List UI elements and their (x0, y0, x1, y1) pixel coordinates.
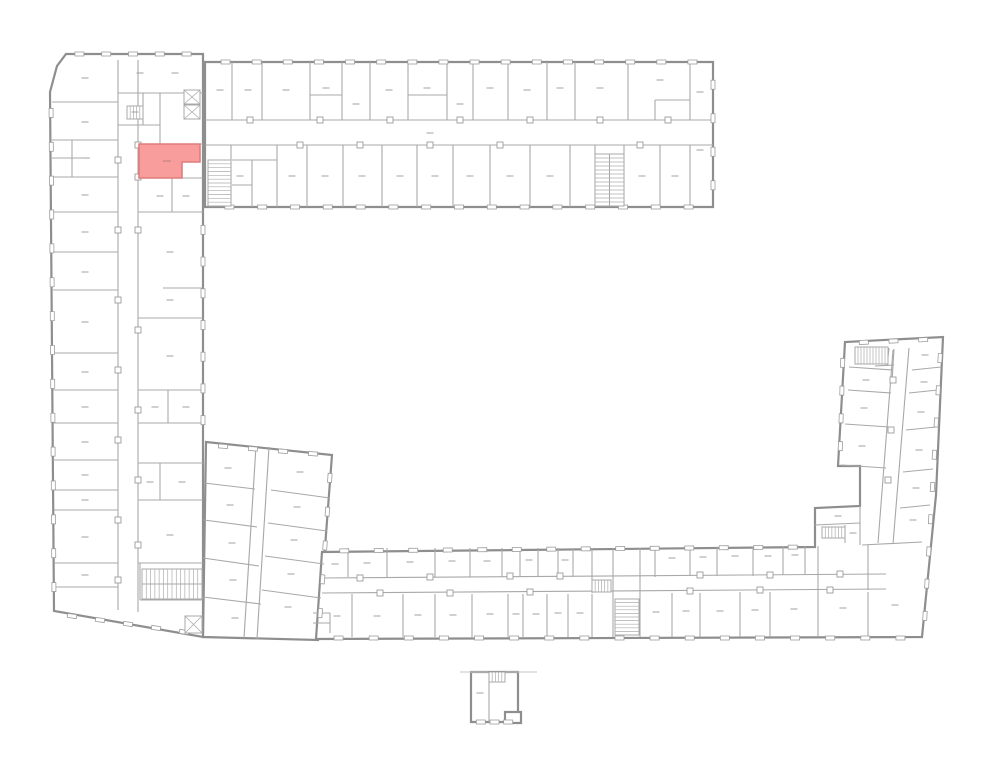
window-icon (325, 507, 330, 516)
window-icon (314, 60, 323, 64)
window-icon (928, 515, 933, 524)
window-icon (932, 450, 937, 459)
window-icon (221, 60, 230, 64)
door-icon (115, 577, 121, 583)
window-icon (377, 60, 386, 64)
window-icon (470, 60, 479, 64)
window-icon (586, 205, 595, 209)
door-icon (115, 157, 121, 163)
window-icon (595, 60, 604, 64)
door-icon (827, 587, 833, 593)
door-icon (885, 477, 891, 483)
window-icon (688, 60, 697, 64)
window-icon (859, 340, 868, 344)
window-icon (422, 205, 431, 209)
window-icon (252, 60, 261, 64)
window-icon (923, 611, 928, 620)
door-icon (687, 588, 693, 594)
window-icon (838, 442, 842, 451)
window-icon (95, 617, 104, 622)
window-icon (711, 181, 715, 190)
staircase-icon (592, 580, 611, 592)
window-icon (389, 205, 398, 209)
window-icon (938, 354, 943, 363)
window-icon (201, 257, 205, 266)
door-icon (497, 142, 503, 148)
window-icon (51, 481, 55, 490)
door-icon (115, 297, 121, 303)
door-icon (357, 142, 363, 148)
window-icon (439, 60, 448, 64)
window-icon (201, 416, 205, 425)
window-icon (478, 548, 487, 552)
window-icon (889, 339, 898, 343)
window-icon (896, 636, 905, 640)
window-icon (926, 547, 931, 556)
window-icon (934, 418, 939, 427)
window-icon (545, 636, 554, 640)
window-icon (919, 337, 928, 341)
floor-plan-page (0, 0, 1000, 777)
door-icon (527, 589, 533, 595)
staircase-icon (822, 527, 845, 538)
window-icon (318, 608, 323, 617)
window-icon (51, 515, 55, 524)
door-icon (597, 117, 603, 123)
window-icon (755, 636, 764, 640)
window-icon (50, 312, 54, 321)
window-icon (334, 636, 343, 640)
window-icon (580, 636, 589, 640)
window-icon (201, 289, 205, 298)
elevator-icon (185, 616, 202, 633)
door-icon (665, 117, 671, 123)
window-icon (720, 636, 729, 640)
window-icon (936, 386, 941, 395)
bottom-and-right-wing (316, 337, 943, 639)
elevator-icon (184, 105, 200, 119)
door-icon (115, 437, 121, 443)
window-icon (75, 52, 84, 56)
window-icon (49, 142, 53, 151)
window-icon (327, 473, 332, 482)
window-icon (51, 413, 55, 422)
staircase-icon (595, 154, 624, 206)
window-icon (50, 278, 54, 287)
window-icon (50, 345, 54, 354)
window-icon (512, 547, 521, 551)
window-icon (308, 451, 317, 456)
window-icon (49, 108, 53, 117)
window-icon (123, 621, 132, 626)
door-icon (135, 407, 141, 413)
window-icon (711, 147, 715, 156)
left-wing (50, 54, 203, 637)
window-icon (930, 482, 935, 491)
window-icon (616, 547, 625, 551)
window-icon (547, 547, 556, 551)
window-icon (283, 60, 292, 64)
window-icon (650, 636, 659, 640)
window-icon (201, 225, 205, 234)
door-icon (427, 142, 433, 148)
window-icon (476, 720, 485, 724)
window-icon (626, 60, 635, 64)
window-icon (788, 545, 797, 549)
window-icon (504, 720, 513, 724)
window-icon (50, 210, 54, 219)
window-icon (711, 114, 715, 123)
door-icon (135, 477, 141, 483)
window-icon (581, 547, 590, 551)
window-icon (841, 358, 845, 367)
window-icon (455, 205, 464, 209)
window-icon (258, 205, 267, 209)
door-icon (247, 117, 253, 123)
door-icon (135, 327, 141, 333)
window-icon (201, 321, 205, 330)
window-icon (52, 583, 56, 592)
elevator-icon (184, 90, 200, 104)
window-icon (685, 546, 694, 550)
window-icon (711, 80, 715, 89)
window-icon (155, 52, 164, 56)
window-icon (67, 613, 76, 618)
door-icon (357, 575, 363, 581)
door-icon (115, 367, 121, 373)
door-icon (890, 377, 896, 383)
window-icon (409, 548, 418, 552)
window-icon (340, 549, 349, 553)
window-icon (49, 176, 53, 185)
window-icon (826, 636, 835, 640)
door-icon (457, 117, 463, 123)
window-icon (102, 52, 111, 56)
window-icon (356, 205, 365, 209)
window-icon (510, 636, 519, 640)
staircase-icon (142, 569, 202, 599)
window-icon (151, 625, 160, 630)
door-icon (697, 572, 703, 578)
staircase-icon (855, 347, 888, 364)
window-icon (52, 549, 56, 558)
door-icon (317, 117, 323, 123)
window-icon (791, 636, 800, 640)
window-icon (182, 52, 191, 56)
window-icon (490, 720, 499, 724)
window-icon (563, 60, 572, 64)
door-icon (387, 117, 393, 123)
window-icon (839, 414, 843, 423)
staircase-icon (489, 672, 505, 682)
door-icon (507, 573, 513, 579)
window-icon (50, 244, 54, 253)
window-icon (51, 447, 55, 456)
window-icon (323, 541, 328, 550)
window-icon (685, 636, 694, 640)
window-icon (129, 52, 138, 56)
window-icon (840, 386, 844, 395)
window-icon (684, 205, 693, 209)
door-icon (837, 571, 843, 577)
window-icon (657, 60, 666, 64)
window-icon (201, 352, 205, 361)
window-icon (520, 205, 529, 209)
window-icon (404, 636, 413, 640)
window-icon (248, 446, 257, 451)
window-icon (439, 636, 448, 640)
window-icon (201, 384, 205, 393)
window-icon (651, 205, 660, 209)
door-icon (447, 590, 453, 596)
window-icon (925, 579, 930, 588)
door-icon (115, 517, 121, 523)
window-icon (475, 636, 484, 640)
door-icon (888, 427, 894, 433)
door-icon (135, 542, 141, 548)
window-icon (51, 379, 55, 388)
window-icon (719, 546, 728, 550)
window-icon (323, 205, 332, 209)
staircase-icon (615, 599, 639, 635)
window-icon (487, 205, 496, 209)
window-icon (650, 546, 659, 550)
window-icon (291, 205, 300, 209)
window-icon (553, 205, 562, 209)
window-icon (501, 60, 510, 64)
door-icon (527, 117, 533, 123)
window-icon (320, 575, 325, 584)
door-icon (557, 573, 563, 579)
window-icon (374, 549, 383, 553)
window-icon (861, 636, 870, 640)
staircase-icon (208, 160, 231, 206)
window-icon (346, 60, 355, 64)
window-icon (278, 449, 287, 454)
window-icon (369, 636, 378, 640)
door-icon (115, 227, 121, 233)
window-icon (615, 636, 624, 640)
window-icon (754, 545, 763, 549)
top-wing (205, 62, 713, 207)
floor-plan-drawing (0, 0, 1000, 777)
door-icon (377, 590, 383, 596)
window-icon (218, 444, 227, 449)
door-icon (427, 574, 433, 580)
door-icon (297, 142, 303, 148)
door-icon (637, 142, 643, 148)
window-icon (443, 548, 452, 552)
door-icon (757, 587, 763, 593)
window-icon (408, 60, 417, 64)
window-icon (532, 60, 541, 64)
door-icon (767, 572, 773, 578)
door-icon (135, 227, 141, 233)
